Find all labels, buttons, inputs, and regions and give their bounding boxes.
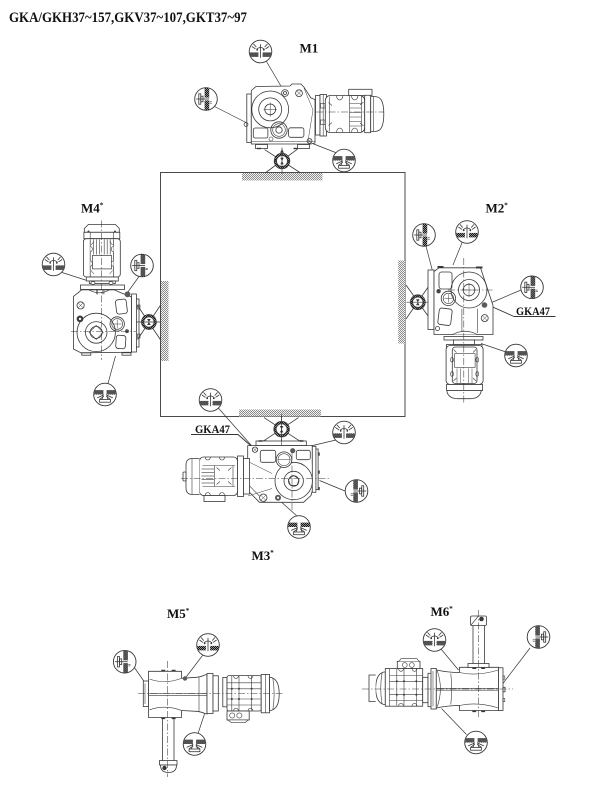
svg-text:M1: M1 xyxy=(300,41,319,56)
svg-text:GKA/GKH37~157,GKV37~107,GKT37~: GKA/GKH37~157,GKV37~107,GKT37~97 xyxy=(9,9,247,26)
